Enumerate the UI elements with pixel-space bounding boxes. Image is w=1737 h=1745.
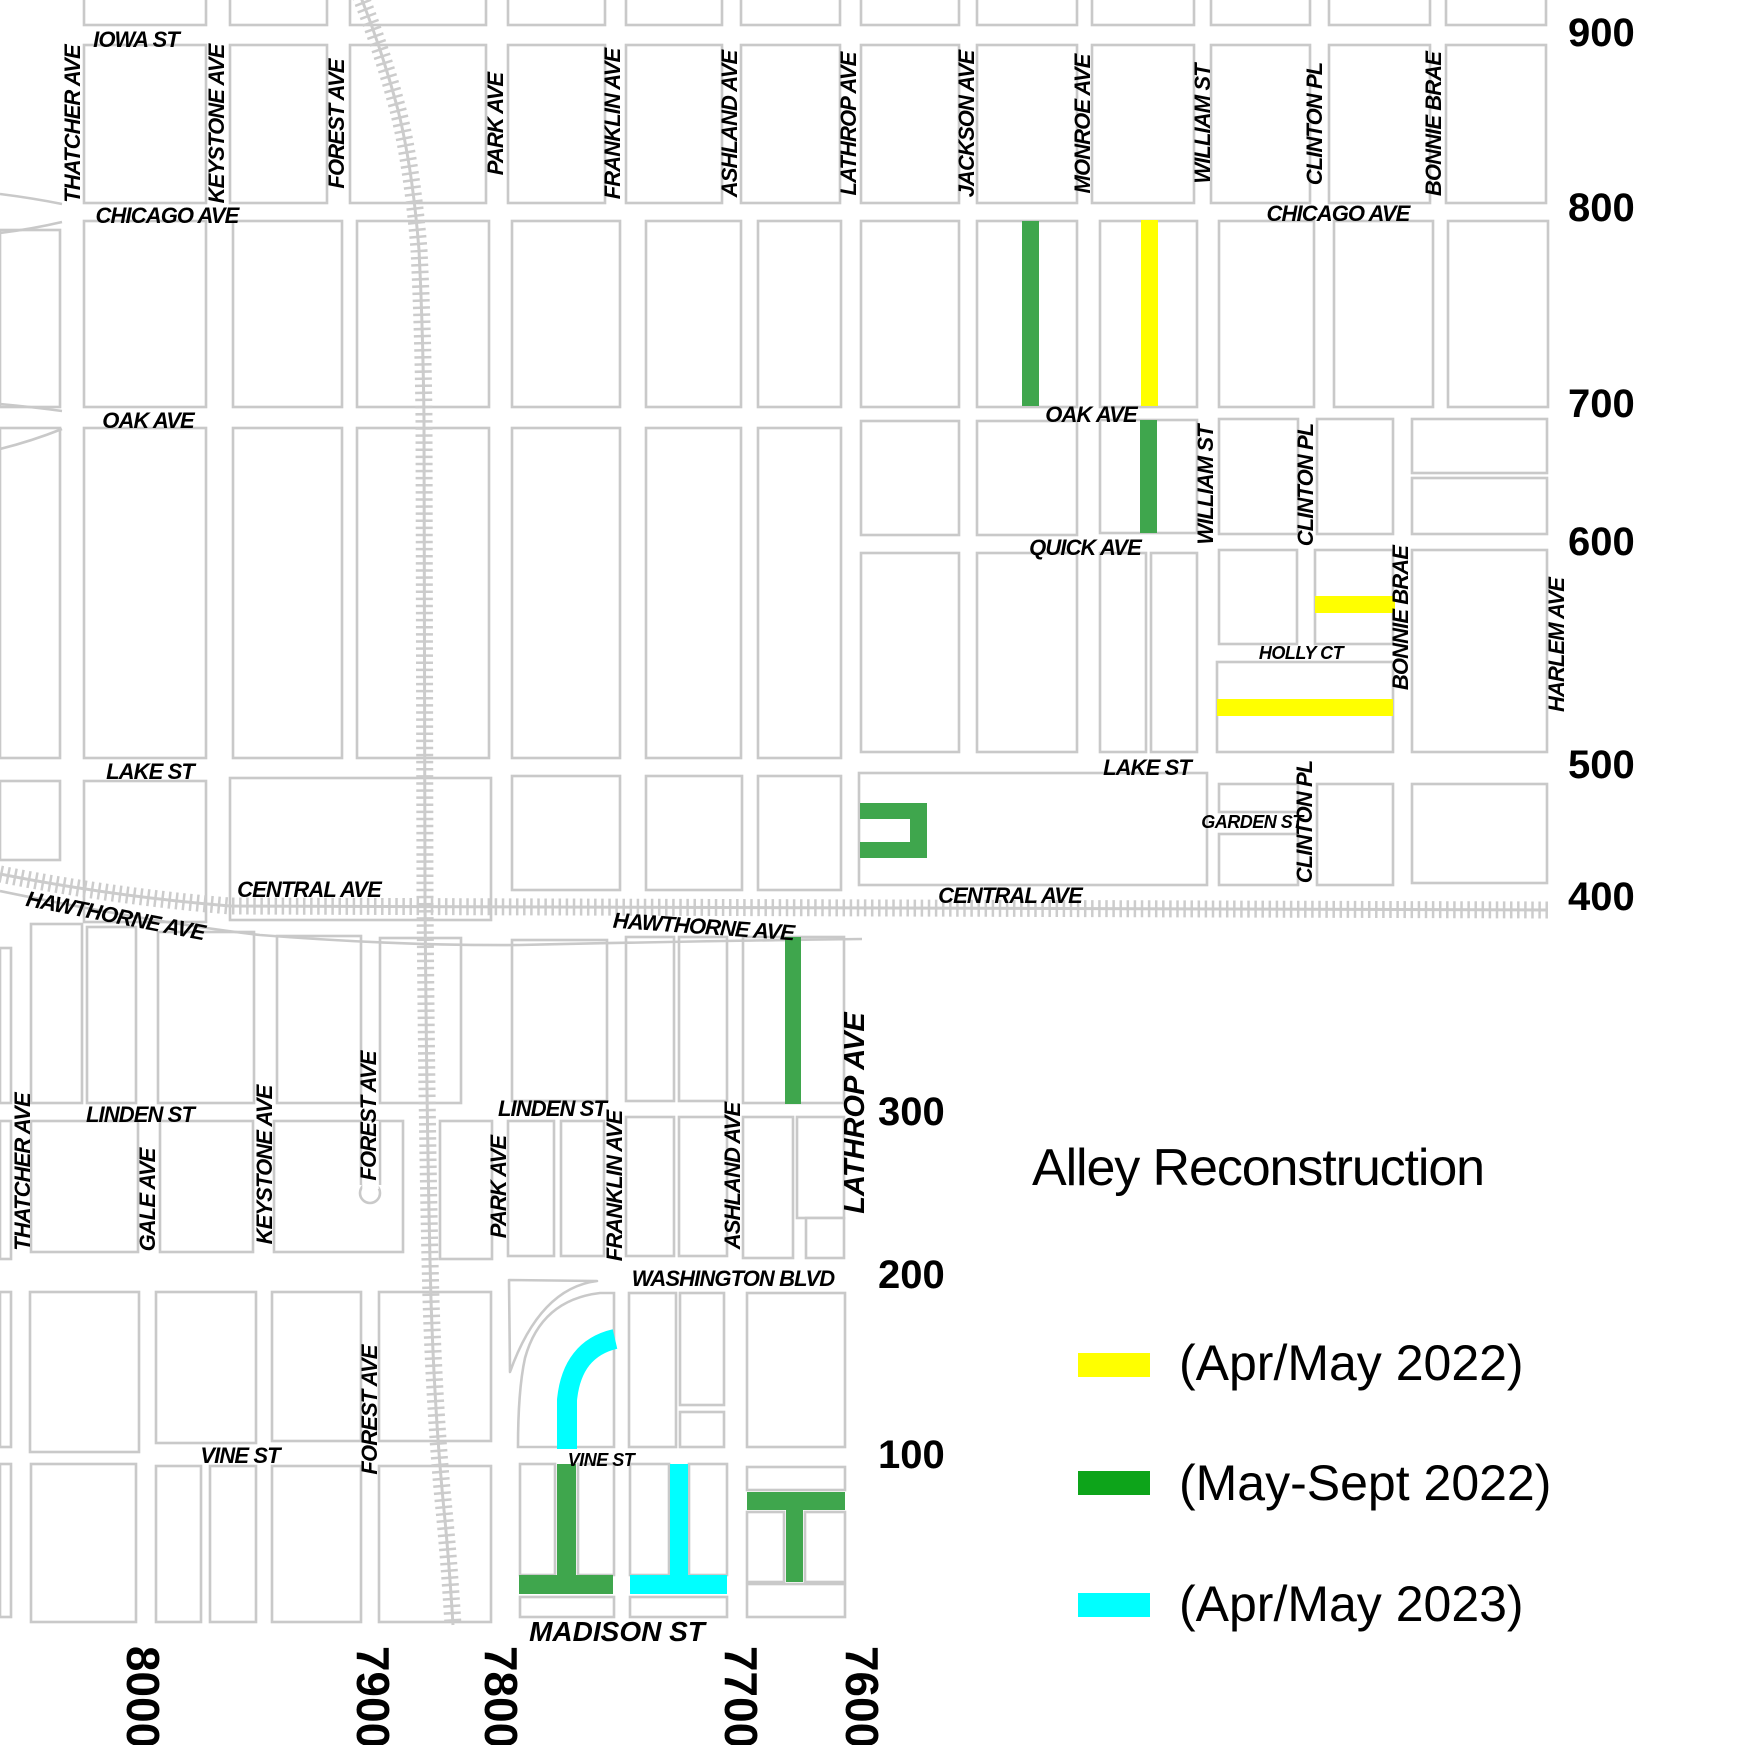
svg-text:8000: 8000 bbox=[117, 1646, 169, 1745]
svg-text:(Apr/May 2022): (Apr/May 2022) bbox=[1179, 1335, 1524, 1391]
svg-text:800: 800 bbox=[1568, 186, 1635, 230]
svg-text:LATHROP AVE: LATHROP AVE bbox=[836, 50, 861, 195]
svg-text:BONNIE BRAE: BONNIE BRAE bbox=[1421, 50, 1446, 196]
svg-text:LAKE ST: LAKE ST bbox=[106, 759, 196, 784]
svg-text:FRANKLIN AVE: FRANKLIN AVE bbox=[602, 1109, 627, 1262]
svg-text:600: 600 bbox=[1568, 520, 1635, 564]
svg-text:LATHROP AVE: LATHROP AVE bbox=[839, 1011, 871, 1214]
svg-text:THATCHER AVE: THATCHER AVE bbox=[10, 1091, 35, 1251]
svg-text:CLINTON PL: CLINTON PL bbox=[1293, 423, 1318, 546]
svg-text:CHICAGO AVE: CHICAGO AVE bbox=[96, 203, 241, 228]
svg-text:7700: 7700 bbox=[715, 1646, 767, 1745]
svg-text:CHICAGO AVE: CHICAGO AVE bbox=[1267, 201, 1412, 226]
svg-text:LINDEN ST: LINDEN ST bbox=[86, 1102, 196, 1127]
svg-text:IOWA ST: IOWA ST bbox=[93, 27, 181, 52]
svg-text:LAKE ST: LAKE ST bbox=[1103, 755, 1193, 780]
svg-text:7800: 7800 bbox=[475, 1646, 527, 1745]
svg-text:200: 200 bbox=[878, 1253, 945, 1297]
svg-text:CLINTON PL: CLINTON PL bbox=[1302, 62, 1327, 185]
svg-text:(May-Sept 2022): (May-Sept 2022) bbox=[1179, 1455, 1551, 1511]
svg-text:WASHINGTON BLVD: WASHINGTON BLVD bbox=[632, 1266, 835, 1291]
svg-text:KEYSTONE AVE: KEYSTONE AVE bbox=[204, 42, 229, 203]
svg-text:7600: 7600 bbox=[836, 1646, 888, 1745]
svg-text:JACKSON AVE: JACKSON AVE bbox=[954, 48, 979, 197]
svg-text:FRANKLIN AVE: FRANKLIN AVE bbox=[600, 47, 625, 200]
svg-text:CENTRAL AVE: CENTRAL AVE bbox=[237, 877, 383, 902]
svg-text:HARLEM AVE: HARLEM AVE bbox=[1544, 576, 1569, 712]
svg-text:OAK AVE: OAK AVE bbox=[102, 408, 196, 433]
svg-text:100: 100 bbox=[878, 1433, 945, 1477]
svg-text:MADISON ST: MADISON ST bbox=[529, 1616, 708, 1647]
svg-text:400: 400 bbox=[1568, 875, 1635, 919]
svg-text:VINE ST: VINE ST bbox=[200, 1443, 282, 1468]
svg-text:900: 900 bbox=[1568, 11, 1635, 55]
svg-text:VINE ST: VINE ST bbox=[568, 1450, 637, 1470]
svg-text:FOREST AVE: FOREST AVE bbox=[357, 1343, 382, 1474]
svg-text:GARDEN ST: GARDEN ST bbox=[1201, 812, 1305, 832]
svg-text:(Apr/May 2023): (Apr/May 2023) bbox=[1179, 1576, 1524, 1632]
svg-text:LINDEN ST: LINDEN ST bbox=[498, 1096, 608, 1121]
svg-text:WILLIAM ST: WILLIAM ST bbox=[1190, 62, 1215, 184]
svg-text:CENTRAL AVE: CENTRAL AVE bbox=[938, 883, 1084, 908]
svg-text:HOLLY CT: HOLLY CT bbox=[1259, 643, 1346, 663]
svg-text:ASHLAND AVE: ASHLAND AVE bbox=[720, 1101, 745, 1251]
svg-text:FOREST AVE: FOREST AVE bbox=[356, 1049, 381, 1180]
svg-text:OAK AVE: OAK AVE bbox=[1045, 402, 1139, 427]
svg-text:ASHLAND AVE: ASHLAND AVE bbox=[717, 49, 742, 199]
svg-text:KEYSTONE AVE: KEYSTONE AVE bbox=[252, 1083, 277, 1244]
svg-text:500: 500 bbox=[1568, 743, 1635, 787]
svg-text:300: 300 bbox=[878, 1090, 945, 1134]
svg-text:7900: 7900 bbox=[347, 1646, 399, 1745]
svg-text:MONROE AVE: MONROE AVE bbox=[1070, 52, 1095, 193]
svg-text:BONNIE BRAE: BONNIE BRAE bbox=[1388, 544, 1413, 690]
svg-text:Alley Reconstruction: Alley Reconstruction bbox=[1032, 1139, 1484, 1197]
svg-text:PARK AVE: PARK AVE bbox=[486, 1134, 511, 1239]
svg-text:WILLIAM ST: WILLIAM ST bbox=[1193, 423, 1218, 545]
svg-text:GALE AVE: GALE AVE bbox=[135, 1146, 160, 1251]
svg-text:PARK AVE: PARK AVE bbox=[483, 71, 508, 176]
svg-text:QUICK AVE: QUICK AVE bbox=[1029, 535, 1143, 560]
svg-text:700: 700 bbox=[1568, 382, 1635, 426]
svg-text:THATCHER AVE: THATCHER AVE bbox=[60, 43, 85, 203]
svg-text:FOREST AVE: FOREST AVE bbox=[324, 57, 349, 188]
